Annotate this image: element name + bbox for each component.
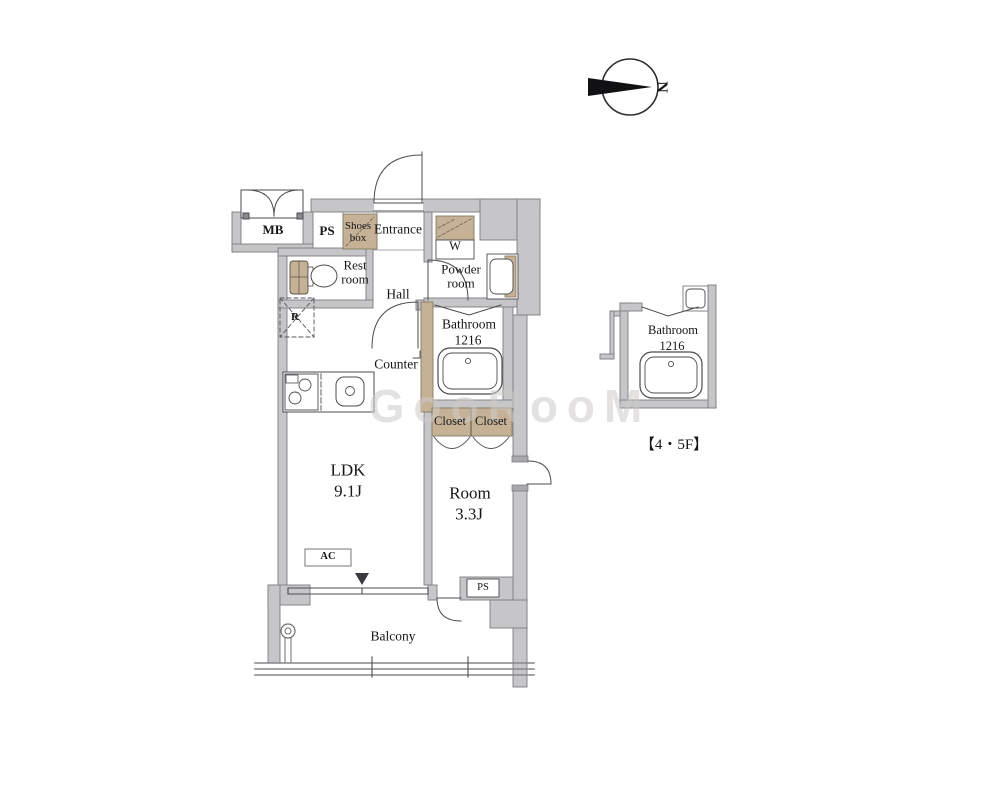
label-fridge: R bbox=[291, 311, 299, 323]
label-shoes-box: Shoes box bbox=[340, 220, 376, 244]
floor-plan-page: GooRooM MB PS Shoes box Entrance W Rest … bbox=[0, 0, 999, 801]
vanity-sink bbox=[487, 254, 518, 299]
label-ps-top: PS bbox=[319, 224, 334, 238]
label-ac: AC bbox=[320, 551, 335, 563]
label-north: N bbox=[652, 81, 670, 93]
label-balcony: Balcony bbox=[371, 630, 416, 645]
label-ldk: LDK bbox=[331, 462, 366, 481]
entrance-opening bbox=[374, 200, 423, 212]
label-bathroom: Bathroom bbox=[442, 318, 496, 333]
door-jamb bbox=[512, 485, 528, 491]
label-inset-bathroom: Bathroom bbox=[648, 324, 698, 338]
watermark: GooRooM bbox=[369, 379, 652, 433]
label-room: Room bbox=[449, 485, 491, 504]
label-counter: Counter bbox=[374, 358, 418, 373]
label-room-size: 3.3J bbox=[455, 506, 483, 525]
label-bathroom-size: 1216 bbox=[455, 334, 482, 349]
side-door-opening bbox=[511, 461, 529, 486]
door-jamb bbox=[512, 456, 528, 462]
label-mb: MB bbox=[263, 223, 284, 237]
label-ldk-size: 9.1J bbox=[334, 483, 362, 502]
label-washer: W bbox=[449, 240, 461, 254]
label-closet-right: Closet bbox=[475, 415, 507, 429]
north-arrow-icon bbox=[588, 59, 658, 115]
mb-doors bbox=[241, 190, 303, 219]
label-inset-caption: 【4・5F】 bbox=[640, 437, 708, 454]
label-rest-room: Rest room bbox=[331, 259, 379, 288]
label-hall: Hall bbox=[386, 288, 409, 303]
label-powder-room: Powder room bbox=[432, 263, 490, 292]
label-entrance: Entrance bbox=[374, 223, 422, 238]
kitchen bbox=[283, 372, 374, 412]
label-ps-bottom: PS bbox=[477, 582, 489, 594]
label-closet-left: Closet bbox=[434, 415, 466, 429]
label-inset-bathroom-size: 1216 bbox=[660, 340, 685, 354]
